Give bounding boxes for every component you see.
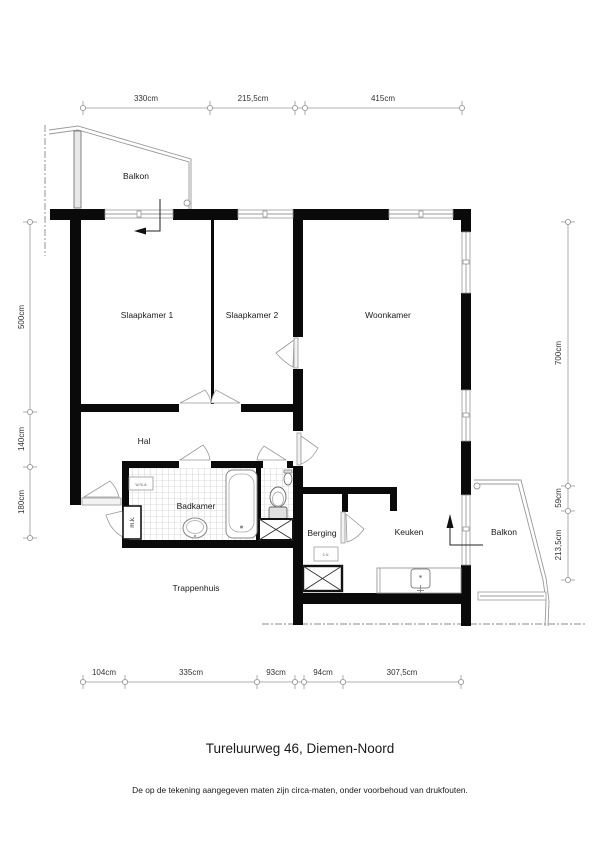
window-living-right-1 — [462, 232, 470, 293]
washer-connection-box: w.m.a — [129, 477, 153, 490]
washer-connection-label: w.m.a — [136, 482, 148, 487]
dim-left-2: 140cm — [17, 427, 26, 451]
dim-bottom-2: 335cm — [179, 668, 203, 677]
dim-right-1: 700cm — [554, 341, 563, 365]
toilet — [269, 487, 287, 519]
window-bedroom1 — [105, 210, 173, 218]
dim-top-2: 215,5cm — [238, 94, 269, 103]
room-label-bedroom1: Slaapkamer 1 — [121, 310, 174, 320]
balcony-screen — [74, 131, 81, 208]
shaft-toilet — [259, 519, 293, 540]
dim-bottom-4: 94cm — [313, 668, 333, 677]
dim-right-2: 59cm — [554, 488, 563, 508]
meter-cupboard: m.k. — [123, 506, 141, 539]
room-label-bathroom: Badkamer — [177, 501, 216, 511]
window-living-right-2 — [462, 390, 470, 441]
room-label-hall: Hal — [138, 436, 151, 446]
storage-door-leaf — [341, 512, 345, 543]
dim-bottom-5: 307,5cm — [387, 668, 418, 677]
hall-living-door-leaf — [297, 433, 301, 465]
meter-cupboard-label: m.k. — [130, 516, 136, 528]
dim-right-3: 213,5cm — [554, 529, 563, 560]
page-title: Tureluurweg 46, Diemen-Noord — [206, 741, 395, 756]
bedroom2-living-door-leaf — [294, 338, 298, 368]
entrance-door-leaf — [82, 498, 121, 505]
balcony-door-kitchen — [462, 495, 470, 565]
dim-top-1: 330cm — [134, 94, 158, 103]
room-label-bedroom2: Slaapkamer 2 — [226, 310, 279, 320]
disclaimer-text: De op de tekening aangegeven maten zijn … — [132, 785, 468, 795]
dim-left-3: 180cm — [17, 490, 26, 514]
window-bedroom2 — [238, 210, 293, 218]
room-label-storage: Berging — [307, 528, 337, 538]
window-living-top — [389, 210, 453, 218]
floorplan-drawing: w.m.a m.k. c.v. Balkon Slaapkamer 1 Slaa… — [0, 0, 600, 849]
room-label-living: Woonkamer — [365, 310, 411, 320]
room-label-balcony-right: Balkon — [491, 527, 517, 537]
toilet-hand-basin — [284, 470, 292, 485]
dim-bottom-1: 104cm — [92, 668, 116, 677]
dim-left-1: 500cm — [17, 305, 26, 329]
room-label-kitchen: Keuken — [395, 527, 424, 537]
central-heating-box: c.v. — [314, 547, 338, 561]
central-heating-label: c.v. — [323, 552, 330, 557]
bathtub — [226, 470, 257, 538]
dim-top-3: 415cm — [371, 94, 395, 103]
room-label-balcony-top: Balkon — [123, 171, 149, 181]
dim-bottom-3: 93cm — [266, 668, 286, 677]
room-label-stairwell: Trappenhuis — [173, 583, 220, 593]
bathroom-sink — [183, 518, 207, 538]
shaft-storage — [303, 566, 342, 591]
